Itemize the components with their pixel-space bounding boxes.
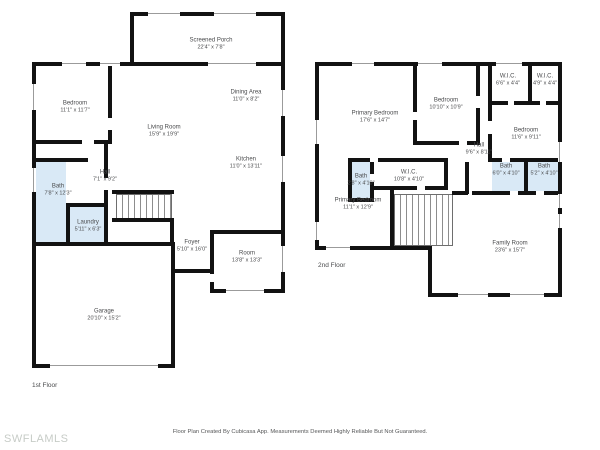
room-dims: 2'8" x 4'10" bbox=[347, 180, 374, 187]
room-label-hall-2f: Hall 9'6" x 8'11" bbox=[466, 142, 493, 156]
room-label-wic-1: W.I.C. 6'6" x 4'4" bbox=[496, 73, 520, 87]
window bbox=[558, 142, 562, 162]
room-name: W.I.C. bbox=[394, 169, 424, 176]
wall bbox=[488, 158, 502, 162]
room-name: Hall bbox=[93, 169, 117, 176]
disclaimer-text: Floor Plan Created By Cubicasa App. Meas… bbox=[0, 429, 600, 435]
room-name: Bath bbox=[492, 163, 519, 170]
room-label-bath-right-2: Bath 5'2" x 4'10" bbox=[530, 163, 557, 177]
room-label-bedroom-middle: Bedroom 10'10" x 10'9" bbox=[429, 97, 462, 111]
room-dims: 7'1" x 9'2" bbox=[93, 176, 117, 183]
room-dims: 13'8" x 13'3" bbox=[232, 257, 262, 264]
room-dims: 15'9" x 19'9" bbox=[147, 131, 180, 138]
wall bbox=[558, 62, 562, 297]
room-name: Living Room bbox=[147, 124, 180, 131]
wall bbox=[514, 101, 540, 105]
window bbox=[326, 246, 350, 250]
room-name: Bath bbox=[347, 173, 374, 180]
room-name: W.I.C. bbox=[533, 73, 557, 80]
wall bbox=[476, 62, 480, 96]
room-dims: 9'6" x 8'11" bbox=[466, 149, 493, 156]
room-label-foyer: Foyer 5'10" x 16'0" bbox=[177, 239, 207, 253]
room-dims: 17'6" x 14'7" bbox=[352, 117, 399, 124]
room-dims: 20'10" x 15'2" bbox=[87, 315, 120, 322]
room-name: Bedroom bbox=[511, 127, 540, 134]
window bbox=[315, 222, 319, 240]
window bbox=[458, 293, 488, 297]
room-name: W.I.C. bbox=[496, 73, 520, 80]
room-name: Dining Area bbox=[230, 89, 261, 96]
room-label-primary-bedroom: Primary Bedroom 17'6" x 14'7" bbox=[352, 110, 399, 124]
room-dims: 11'1" x 11'7" bbox=[60, 107, 89, 114]
room-name: Laundry bbox=[75, 219, 102, 226]
wall bbox=[413, 62, 417, 112]
room-label-screened-porch: Screened Porch 22'4" x 7'8" bbox=[189, 37, 232, 51]
room-dims: 10'10" x 10'9" bbox=[429, 104, 462, 111]
room-label-bath: Bath 7'8" x 12'3" bbox=[44, 183, 71, 197]
window bbox=[418, 62, 442, 66]
window bbox=[510, 293, 544, 297]
wall bbox=[370, 162, 374, 174]
wall bbox=[472, 191, 492, 195]
room-label-garage: Garage 20'10" x 15'2" bbox=[87, 308, 120, 322]
room-dims: 11'0" x 13'11" bbox=[230, 163, 262, 170]
room-dims: 5'10" x 16'0" bbox=[177, 246, 207, 253]
wall bbox=[444, 158, 448, 190]
room-dims: 11'0" x 8'2" bbox=[230, 96, 261, 103]
room-label-laundry: Laundry 5'11" x 6'3" bbox=[75, 219, 102, 233]
wall bbox=[428, 246, 432, 297]
wall bbox=[476, 108, 480, 145]
room-name: Bath bbox=[530, 163, 557, 170]
room-dims: 11'6" x 9'11" bbox=[511, 134, 540, 141]
room-label-primary-bedroom-2: Primary Bedroom 11'1" x 12'9" bbox=[335, 197, 382, 211]
room-label-wic-2: W.I.C. 4'9" x 4'4" bbox=[533, 73, 557, 87]
room-name: Primary Bedroom bbox=[352, 110, 399, 117]
room-name: Screened Porch bbox=[189, 37, 232, 44]
floor-label-2nd: 2nd Floor bbox=[318, 262, 345, 269]
room-label-kitchen: Kitchen 11'0" x 13'11" bbox=[230, 156, 262, 170]
room-name: Garage bbox=[87, 308, 120, 315]
wall bbox=[378, 158, 448, 162]
room-label-bedroom-right: Bedroom 11'6" x 9'11" bbox=[511, 127, 540, 141]
window bbox=[352, 62, 374, 66]
room-name: Foyer bbox=[177, 239, 207, 246]
watermark-swflamls: SWFLAMLS bbox=[4, 433, 69, 445]
room-name: Bedroom bbox=[429, 97, 462, 104]
room-dims: 11'1" x 12'9" bbox=[335, 204, 382, 211]
window bbox=[496, 62, 522, 66]
window bbox=[558, 194, 562, 208]
room-label-wic-3: W.I.C. 10'8" x 4'10" bbox=[394, 169, 424, 183]
wall bbox=[518, 191, 536, 195]
room-dims: 6'0" x 4'10" bbox=[492, 170, 519, 177]
room-name: Room bbox=[232, 250, 262, 257]
wall bbox=[510, 158, 562, 162]
room-dims: 5'2" x 4'10" bbox=[530, 170, 557, 177]
room-dims: 23'6" x 15'7" bbox=[492, 247, 527, 254]
room-label-bath-small: Bath 2'8" x 4'10" bbox=[347, 173, 374, 187]
room-dims: 10'8" x 4'10" bbox=[394, 176, 424, 183]
wall bbox=[546, 101, 562, 105]
wall bbox=[465, 162, 469, 194]
floor-plan-image: Screened Porch 22'4" x 7'8" Bedroom 11'1… bbox=[0, 0, 600, 450]
wall bbox=[371, 186, 417, 190]
wall bbox=[528, 62, 532, 105]
room-label-bath-right-1: Bath 6'0" x 4'10" bbox=[492, 163, 519, 177]
room-label-room: Room 13'8" x 13'3" bbox=[232, 250, 262, 264]
wall bbox=[413, 141, 459, 145]
room-label-family-room: Family Room 23'6" x 15'7" bbox=[492, 240, 527, 254]
window bbox=[315, 120, 319, 144]
room-label-living-room: Living Room 15'9" x 19'9" bbox=[147, 124, 180, 138]
room-dims: 6'6" x 4'4" bbox=[496, 80, 520, 87]
room-label-bedroom: Bedroom 11'1" x 11'7" bbox=[60, 100, 89, 114]
wall bbox=[488, 62, 492, 105]
staircase bbox=[394, 194, 453, 246]
room-name: Kitchen bbox=[230, 156, 262, 163]
window bbox=[558, 214, 562, 228]
room-dims: 7'8" x 12'3" bbox=[44, 190, 71, 197]
wall bbox=[390, 190, 394, 250]
room-label-dining-area: Dining Area 11'0" x 8'2" bbox=[230, 89, 261, 103]
room-label-hall: Hall 7'1" x 9'2" bbox=[93, 169, 117, 183]
room-name: Hall bbox=[466, 142, 493, 149]
wall bbox=[488, 105, 492, 121]
room-dims: 5'11" x 6'3" bbox=[75, 226, 102, 233]
room-name: Primary Bedroom bbox=[335, 197, 382, 204]
room-dims: 22'4" x 7'8" bbox=[189, 44, 232, 51]
room-name: Family Room bbox=[492, 240, 527, 247]
room-dims: 4'9" x 4'4" bbox=[533, 80, 557, 87]
room-name: Bath bbox=[44, 183, 71, 190]
wall bbox=[452, 191, 468, 195]
floor-label-1st: 1st Floor bbox=[32, 382, 57, 389]
room-name: Bedroom bbox=[60, 100, 89, 107]
